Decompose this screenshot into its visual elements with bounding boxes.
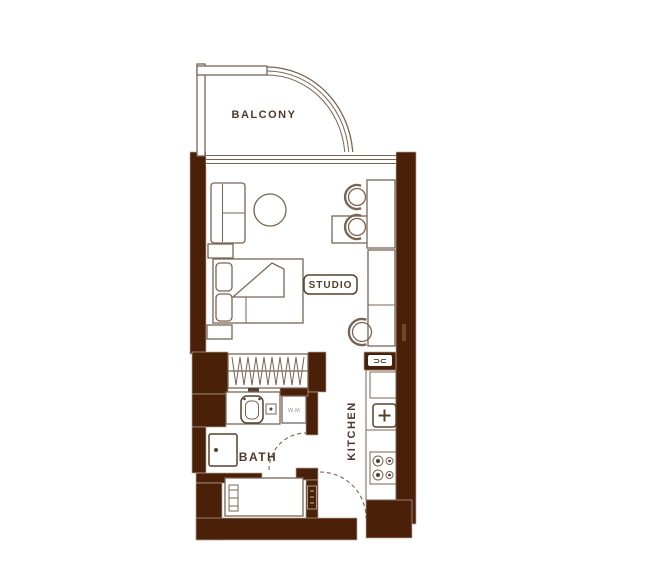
side-table — [208, 244, 233, 258]
wall-fixture-glyph: ⊃⊂ — [373, 357, 387, 366]
washing-machine: W.M — [282, 396, 306, 423]
dining-chair-1 — [345, 185, 365, 209]
floor-plan-page: BALCONY — [0, 0, 660, 568]
wall-kitchen-bottom — [366, 500, 412, 538]
kitchen-sink — [373, 404, 396, 427]
pillow-bottom — [216, 294, 232, 321]
kitchen-unit — [370, 372, 396, 398]
bathtub — [225, 478, 303, 516]
studio-room: STUDIO — [207, 180, 395, 346]
round-table — [254, 194, 286, 226]
balcony-label: BALCONY — [232, 109, 297, 121]
wall-fixture: ⊃⊂ — [368, 355, 392, 366]
wall-niche-left — [192, 427, 206, 473]
balcony-wall-left — [197, 64, 205, 156]
balcony-window — [206, 152, 396, 166]
wall-wardrobe-left — [192, 352, 228, 394]
balcony: BALCONY — [197, 64, 353, 159]
balcony-wall-top — [197, 66, 267, 75]
wall-bath-right — [306, 392, 318, 435]
bath-label: BATH — [239, 450, 277, 464]
studio-label: STUDIO — [309, 280, 353, 291]
kitchen: KITCHEN — [346, 370, 396, 500]
stove — [370, 452, 396, 484]
stove-outline — [370, 452, 396, 484]
pillow-top — [216, 263, 232, 291]
double-bed — [213, 259, 303, 323]
wall-bath-left-top — [192, 394, 226, 427]
studio-label-box: STUDIO — [304, 275, 357, 294]
dining-set — [332, 180, 395, 248]
nightstand — [207, 325, 232, 339]
wall-switch-panel — [308, 486, 317, 509]
floor-plan-drawing: BALCONY — [0, 0, 660, 568]
tub-room — [225, 478, 317, 516]
kitchen-label: KITCHEN — [346, 401, 358, 460]
wall-studio-left — [190, 152, 206, 354]
washbasin — [209, 434, 237, 466]
entry-door-swing — [320, 472, 366, 518]
toilet — [241, 396, 263, 423]
wall-cabinet — [367, 180, 395, 248]
wall-bottom — [196, 518, 357, 540]
wall-dimension-mark — [402, 324, 406, 341]
wardrobe — [228, 354, 308, 388]
sofa — [211, 183, 245, 243]
wall-wardrobe-right — [308, 352, 326, 392]
washing-machine-label: W.M — [288, 408, 300, 414]
